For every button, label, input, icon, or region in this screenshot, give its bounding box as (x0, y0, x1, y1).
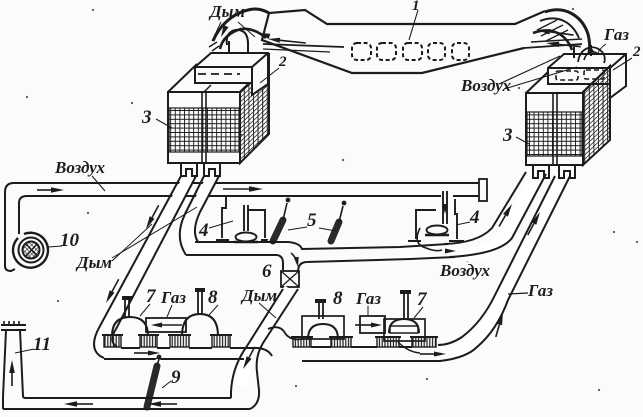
svg-text:4: 4 (198, 220, 209, 241)
svg-text:3: 3 (141, 107, 152, 128)
svg-text:Воздух: Воздух (439, 261, 491, 280)
svg-text:Дым: Дым (75, 253, 112, 272)
svg-text:Воздух: Воздух (460, 76, 512, 95)
svg-text:Газ: Газ (603, 25, 629, 44)
svg-text:2: 2 (278, 54, 287, 70)
svg-text:Воздух: Воздух (54, 158, 106, 177)
svg-text:8: 8 (333, 288, 343, 309)
svg-text:Дым: Дым (240, 286, 277, 305)
svg-text:1: 1 (412, 0, 420, 14)
svg-text:Газ: Газ (160, 288, 186, 307)
svg-text:2: 2 (632, 44, 641, 60)
svg-text:7: 7 (146, 286, 157, 307)
svg-text:10: 10 (60, 230, 80, 251)
svg-text:9: 9 (171, 367, 181, 388)
svg-text:Газ: Газ (355, 289, 381, 308)
svg-text:3: 3 (502, 125, 513, 146)
svg-text:Дым: Дым (208, 2, 245, 21)
svg-text:6: 6 (262, 261, 272, 282)
svg-text:5: 5 (307, 210, 317, 231)
svg-text:4: 4 (469, 207, 480, 228)
svg-text:11: 11 (33, 334, 51, 355)
svg-text:Газ: Газ (527, 281, 553, 300)
svg-text:8: 8 (208, 287, 218, 308)
